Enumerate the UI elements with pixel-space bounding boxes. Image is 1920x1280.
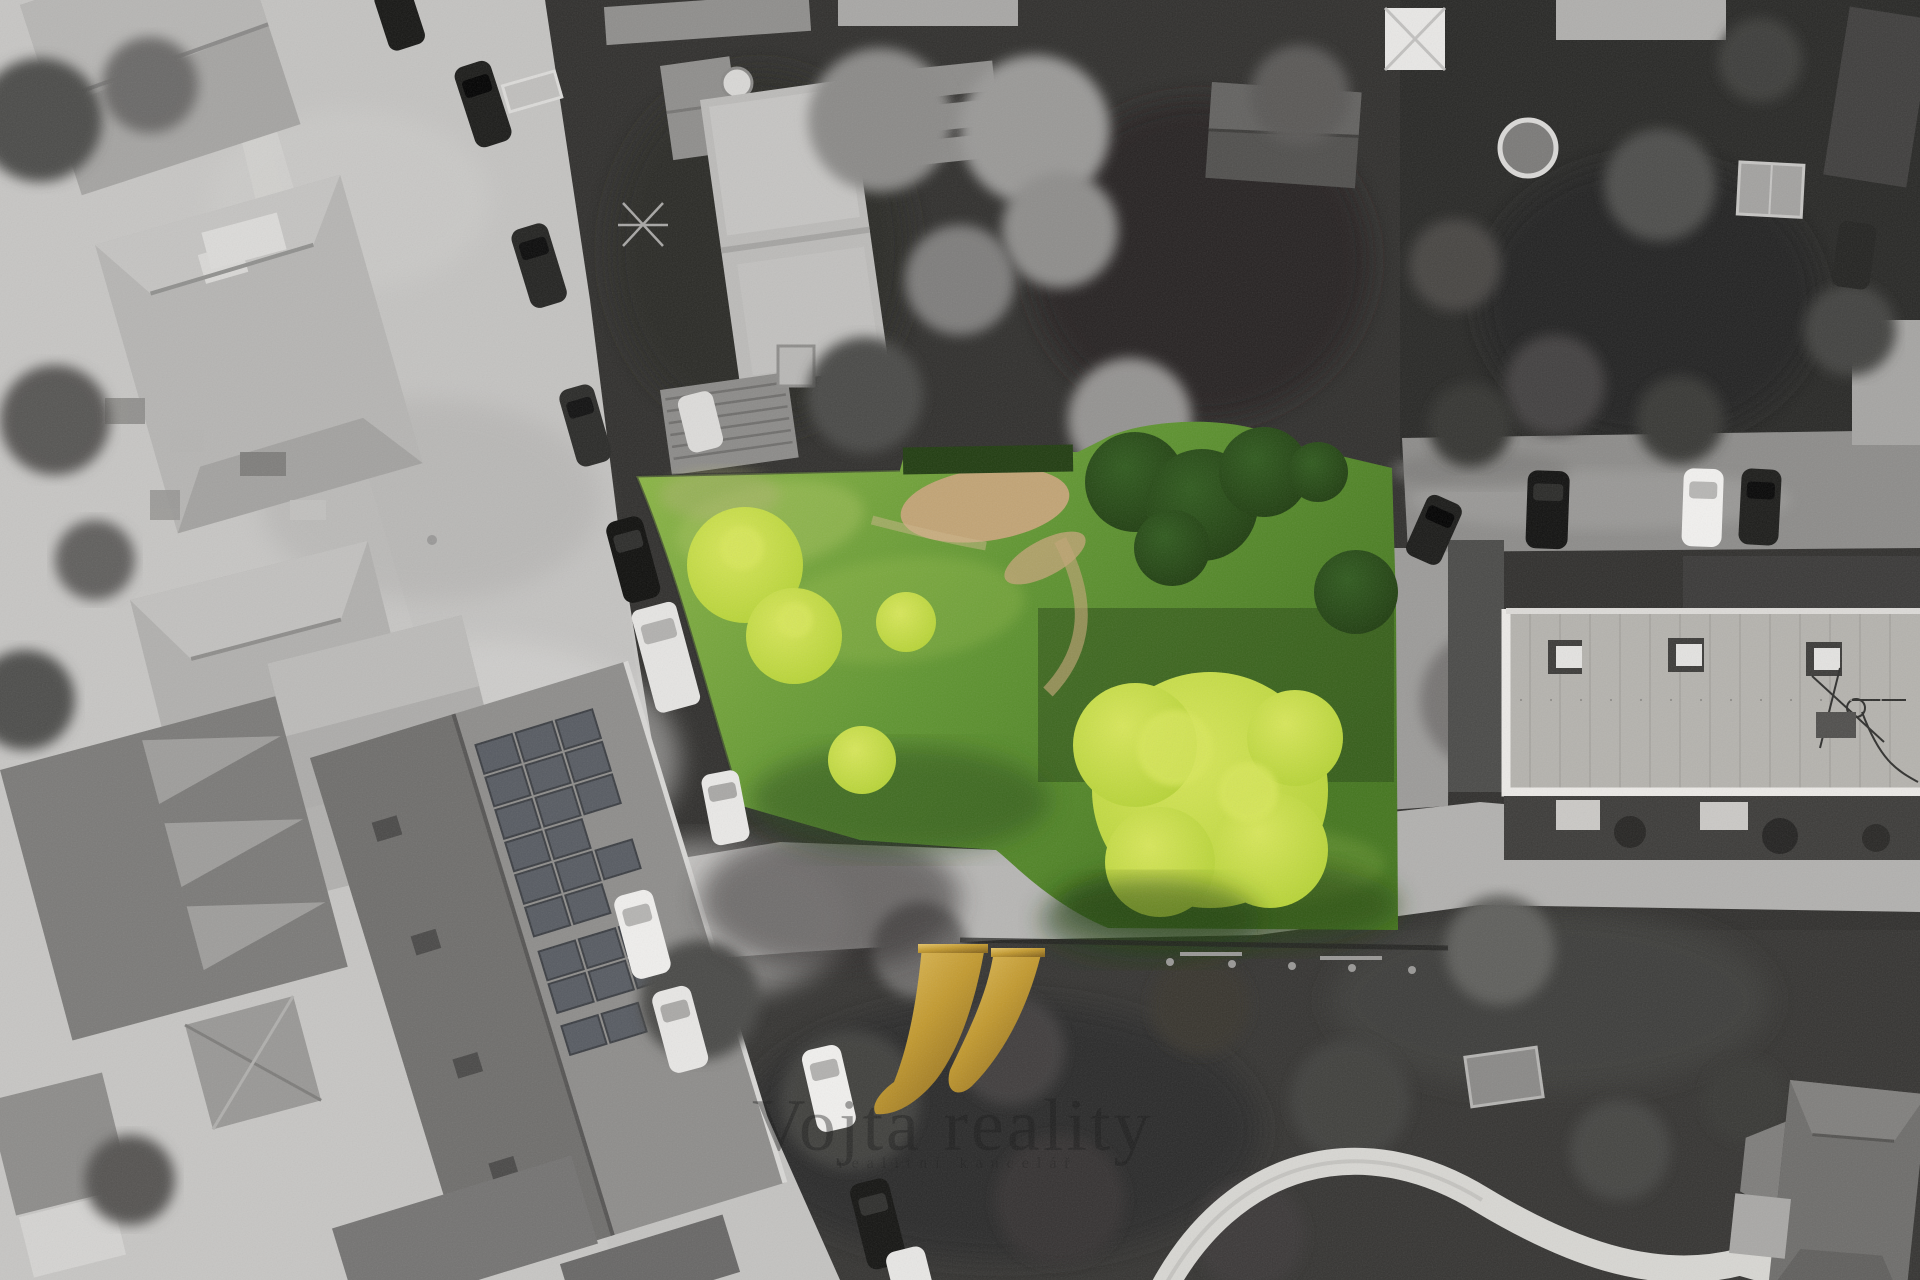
photo-grain-overlay	[0, 0, 1920, 1280]
aerial-drone-photo: Vojta reality realitní kancelář	[0, 0, 1920, 1280]
aerial-photo-canvas: Vojta reality realitní kancelář	[0, 0, 1920, 1280]
